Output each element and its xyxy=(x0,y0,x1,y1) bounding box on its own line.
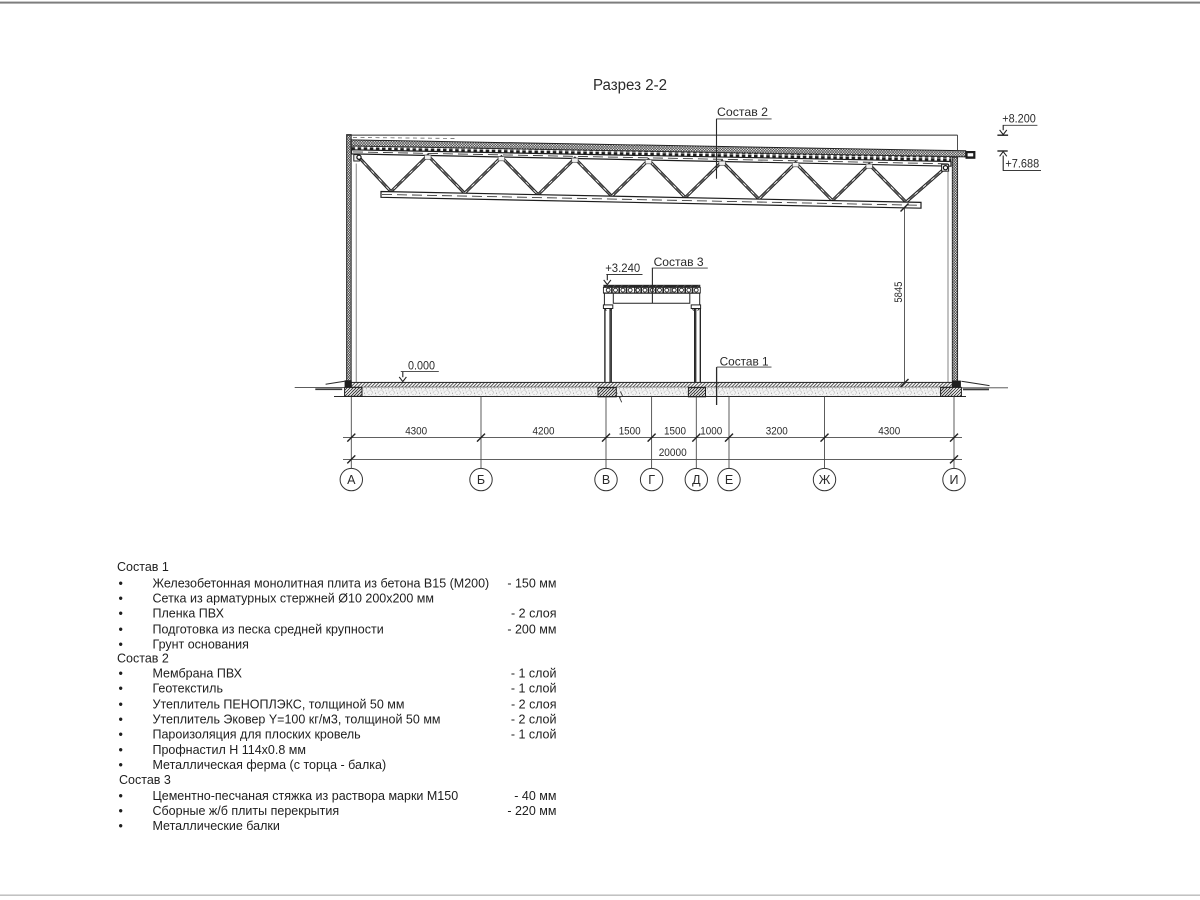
svg-text:•: • xyxy=(119,804,123,818)
svg-text:•: • xyxy=(119,819,123,833)
svg-text:- 2 слоя: - 2 слоя xyxy=(511,698,556,712)
svg-text:•: • xyxy=(119,758,123,772)
svg-text:Геотекстиль: Геотекстиль xyxy=(153,682,223,696)
svg-text:А: А xyxy=(347,473,356,487)
svg-text:4200: 4200 xyxy=(533,425,555,437)
svg-text:•: • xyxy=(119,789,123,803)
svg-text:Состав 2: Состав 2 xyxy=(117,652,169,666)
svg-text:Утеплитель ПЕНОПЛЭКС, толщиной: Утеплитель ПЕНОПЛЭКС, толщиной 50 мм xyxy=(153,698,405,712)
svg-text:- 2 слоя: - 2 слоя xyxy=(511,607,556,621)
svg-text:1500: 1500 xyxy=(619,425,641,437)
svg-text:•: • xyxy=(119,728,123,742)
svg-text:5845: 5845 xyxy=(893,282,905,303)
svg-text:•: • xyxy=(119,607,123,621)
svg-text:•: • xyxy=(119,667,123,681)
svg-text:3200: 3200 xyxy=(766,425,788,437)
svg-text:•: • xyxy=(119,682,123,696)
svg-text:Сетка из арматурных стержней Ø: Сетка из арматурных стержней Ø10 200х200… xyxy=(153,592,435,606)
svg-text:Мембрана ПВХ: Мембрана ПВХ xyxy=(153,667,243,681)
svg-text:•: • xyxy=(119,638,123,652)
svg-text:1500: 1500 xyxy=(664,425,686,437)
svg-text:•: • xyxy=(119,592,123,606)
svg-text:0.000: 0.000 xyxy=(408,361,435,373)
svg-text:Утеплитель Эковер Y=100 кг/м3,: Утеплитель Эковер Y=100 кг/м3, толщиной … xyxy=(153,713,441,727)
svg-text:Пленка ПВХ: Пленка ПВХ xyxy=(153,607,225,621)
svg-text:Цементно-песчаная стяжка из ра: Цементно-песчаная стяжка из раствора мар… xyxy=(153,789,459,803)
svg-text:Сборные ж/б плиты перекрытия: Сборные ж/б плиты перекрытия xyxy=(153,804,340,818)
svg-text:Состав 1: Состав 1 xyxy=(720,354,769,368)
svg-text:Состав 3: Состав 3 xyxy=(654,255,704,269)
svg-text:- 2 слой: - 2 слой xyxy=(511,713,557,727)
svg-text:+3.240: +3.240 xyxy=(605,263,640,275)
svg-text:•: • xyxy=(119,623,123,637)
svg-text:Металлическая ферма (с торца -: Металлическая ферма (с торца - балка) xyxy=(153,758,387,772)
svg-text:4300: 4300 xyxy=(405,425,427,437)
svg-text:Пароизоляция для плоских крове: Пароизоляция для плоских кровель xyxy=(153,728,361,742)
svg-text:Д: Д xyxy=(692,473,701,487)
svg-text:Ж: Ж xyxy=(819,473,831,487)
svg-text:- 40 мм: - 40 мм xyxy=(514,789,556,803)
svg-text:- 1 слой: - 1 слой xyxy=(511,667,557,681)
svg-text:Состав 2: Состав 2 xyxy=(717,105,768,119)
svg-text:+8.200: +8.200 xyxy=(1002,113,1036,125)
svg-text:- 220 мм: - 220 мм xyxy=(507,804,556,818)
svg-text:•: • xyxy=(119,698,123,712)
svg-text:- 1 слой: - 1 слой xyxy=(511,682,557,696)
svg-text:Подготовка из песка средней кр: Подготовка из песка средней крупности xyxy=(153,623,384,637)
svg-text:•: • xyxy=(119,743,123,757)
svg-text:- 1 слой: - 1 слой xyxy=(511,728,557,742)
svg-text:Профнастил Н 114х0.8 мм: Профнастил Н 114х0.8 мм xyxy=(153,743,306,757)
svg-text:Грунт основания: Грунт основания xyxy=(153,638,249,652)
svg-text:Г: Г xyxy=(648,473,655,487)
svg-text:И: И xyxy=(950,473,959,487)
svg-text:Б: Б xyxy=(477,473,485,487)
svg-text:Металлические балки: Металлические балки xyxy=(153,819,280,833)
svg-text:+7.688: +7.688 xyxy=(1005,159,1039,171)
svg-text:Состав 3: Состав 3 xyxy=(119,773,171,787)
svg-text:В: В xyxy=(602,473,610,487)
svg-text:- 200 мм: - 200 мм xyxy=(507,623,556,637)
svg-text:Е: Е xyxy=(725,473,733,487)
svg-text:•: • xyxy=(119,577,123,591)
svg-text:20000: 20000 xyxy=(659,447,687,459)
svg-text:Железобетонная монолитная плит: Железобетонная монолитная плита из бетон… xyxy=(153,577,490,591)
svg-text:4300: 4300 xyxy=(878,425,900,437)
svg-text:Разрез 2-2: Разрез 2-2 xyxy=(593,77,667,94)
svg-text:Состав 1: Состав 1 xyxy=(117,560,169,574)
svg-text:1000: 1000 xyxy=(700,425,722,437)
svg-text:- 150 мм: - 150 мм xyxy=(507,577,556,591)
svg-text:•: • xyxy=(119,713,123,727)
